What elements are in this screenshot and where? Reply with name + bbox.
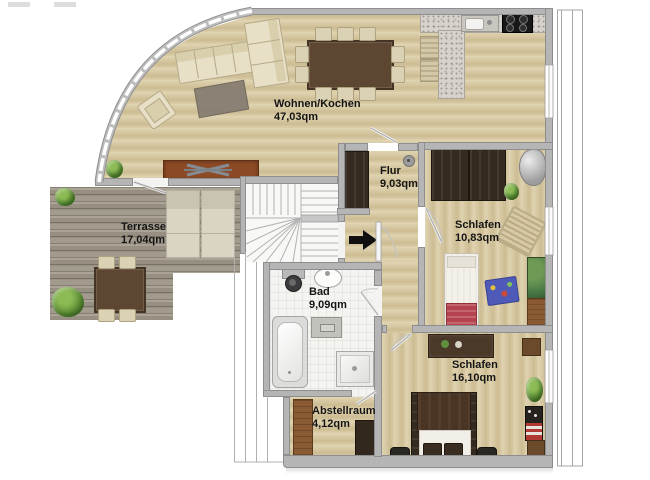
wall-right bbox=[545, 8, 553, 462]
dining-chair bbox=[391, 46, 405, 63]
bedroom-large-plant bbox=[526, 377, 543, 402]
terrace-chair bbox=[119, 309, 136, 322]
kitchen-stool bbox=[420, 59, 439, 82]
wall-hall-stub bbox=[337, 208, 370, 215]
bed-large-duvet bbox=[417, 392, 471, 432]
wall-hall-bottom bbox=[268, 262, 382, 270]
room-area: 17,04qm bbox=[121, 234, 166, 247]
dresser bbox=[428, 334, 494, 358]
terrace-plant-small bbox=[55, 188, 75, 206]
wall-bedroom-small-bottom-a bbox=[382, 325, 387, 333]
bath-sink bbox=[314, 268, 342, 288]
room-name: Bad bbox=[309, 286, 347, 299]
terrace-door-gap bbox=[133, 178, 168, 186]
edge-artifact bbox=[8, 2, 30, 7]
sun-lounger bbox=[201, 190, 235, 258]
room-label-terrasse: Terrasse 17,04qm bbox=[121, 221, 166, 246]
wall-hall-top-a bbox=[345, 143, 368, 151]
wall-bath-left bbox=[263, 262, 270, 397]
wall-bedroom-small-left-b bbox=[418, 247, 425, 332]
toilet bbox=[282, 269, 303, 291]
green-wardrobe bbox=[527, 257, 546, 300]
bath-door-gap bbox=[374, 286, 382, 316]
wall-bedroom-small-left-a bbox=[418, 142, 425, 207]
room-area: 47,03qm bbox=[274, 111, 361, 124]
room-label-schlafen-klein: Schlafen 10,83qm bbox=[455, 219, 501, 244]
dining-chair bbox=[337, 27, 354, 41]
roof-contour-right bbox=[557, 10, 583, 466]
wall-bath-bottom bbox=[263, 390, 352, 397]
beanbag bbox=[519, 149, 546, 186]
wall-bath-right-b bbox=[374, 316, 382, 457]
room-label-abstellraum: Abstellraum 4,12qm bbox=[312, 405, 376, 430]
dining-table bbox=[307, 40, 394, 90]
room-label-wohnen-kochen: Wohnen/Kochen 47,03qm bbox=[274, 98, 361, 123]
room-name: Wohnen/Kochen bbox=[274, 98, 361, 111]
dining-chair bbox=[359, 87, 376, 101]
dining-chair bbox=[315, 27, 332, 41]
floor-plan-canvas: Wohnen/Kochen 47,03qm Terrasse 17,04qm F… bbox=[0, 0, 650, 480]
bath-cabinet bbox=[311, 317, 342, 338]
room-name: Flur bbox=[380, 165, 418, 178]
hall-wardrobe bbox=[344, 151, 369, 210]
bed-small-red-blanket bbox=[446, 303, 477, 326]
room-name: Schlafen bbox=[455, 219, 501, 232]
room-name: Terrasse bbox=[121, 221, 166, 234]
dining-chair bbox=[391, 66, 405, 83]
wall-living-terrace-a bbox=[95, 178, 133, 186]
room-area: 16,10qm bbox=[452, 372, 498, 385]
bed-small bbox=[444, 253, 479, 326]
shower bbox=[336, 351, 374, 387]
sun-lounger bbox=[166, 190, 200, 258]
entry-door-gap bbox=[338, 222, 345, 258]
room-name: Schlafen bbox=[452, 359, 498, 372]
side-cabinet bbox=[522, 338, 541, 356]
wall-top bbox=[250, 8, 553, 15]
dining-chair bbox=[359, 27, 376, 41]
dining-chair bbox=[295, 46, 309, 63]
edge-artifact bbox=[54, 2, 76, 7]
wardrobe-unit bbox=[469, 148, 506, 201]
terrace-chair bbox=[119, 256, 136, 269]
room-area: 9,09qm bbox=[309, 299, 347, 312]
kitchen-counter-side bbox=[438, 30, 465, 99]
living-plant bbox=[106, 160, 123, 178]
stairwell-floor bbox=[246, 184, 338, 262]
room-label-schlafen-gross: Schlafen 16,10qm bbox=[452, 359, 498, 384]
wall-bedroom-small-bottom-b bbox=[412, 325, 553, 333]
wall-storage-left bbox=[283, 397, 290, 455]
room-area: 9,03qm bbox=[380, 178, 418, 191]
terrace-table bbox=[94, 267, 146, 313]
faucet-icon bbox=[487, 20, 492, 25]
room-area: 4,12qm bbox=[312, 418, 376, 431]
storage-shelf-wood bbox=[293, 399, 313, 456]
terrace-notch bbox=[173, 273, 240, 320]
bed-small-pillow bbox=[447, 256, 476, 268]
flag-chair bbox=[525, 406, 543, 441]
kitchen-stove bbox=[502, 12, 533, 33]
bedroom-small-plant bbox=[504, 183, 519, 200]
wall-hall-top-b bbox=[398, 143, 418, 151]
bathtub bbox=[272, 316, 308, 388]
wall-stairwell-left bbox=[240, 176, 246, 254]
kitchen-sink bbox=[461, 15, 499, 32]
room-area: 10,83qm bbox=[455, 232, 501, 245]
terrace-chair bbox=[98, 256, 115, 269]
wall-bedroom-small-top bbox=[418, 142, 553, 150]
dining-chair bbox=[295, 66, 309, 83]
room-label-bad: Bad 9,09qm bbox=[309, 286, 347, 311]
hallway-strip-floor bbox=[382, 262, 418, 333]
kitchen-stool bbox=[420, 36, 439, 59]
wall-living-terrace-b bbox=[168, 178, 245, 186]
wall-bath-right-a bbox=[374, 270, 382, 286]
terrace-chair bbox=[98, 309, 115, 322]
play-rug bbox=[484, 276, 519, 306]
wardrobe-unit bbox=[431, 148, 469, 201]
terrace-plant-large bbox=[52, 287, 84, 317]
wall-bottom bbox=[283, 455, 553, 468]
room-name: Abstellraum bbox=[312, 405, 376, 418]
room-label-flur: Flur 9,03qm bbox=[380, 165, 418, 190]
wall-stairwell-top bbox=[240, 176, 338, 184]
